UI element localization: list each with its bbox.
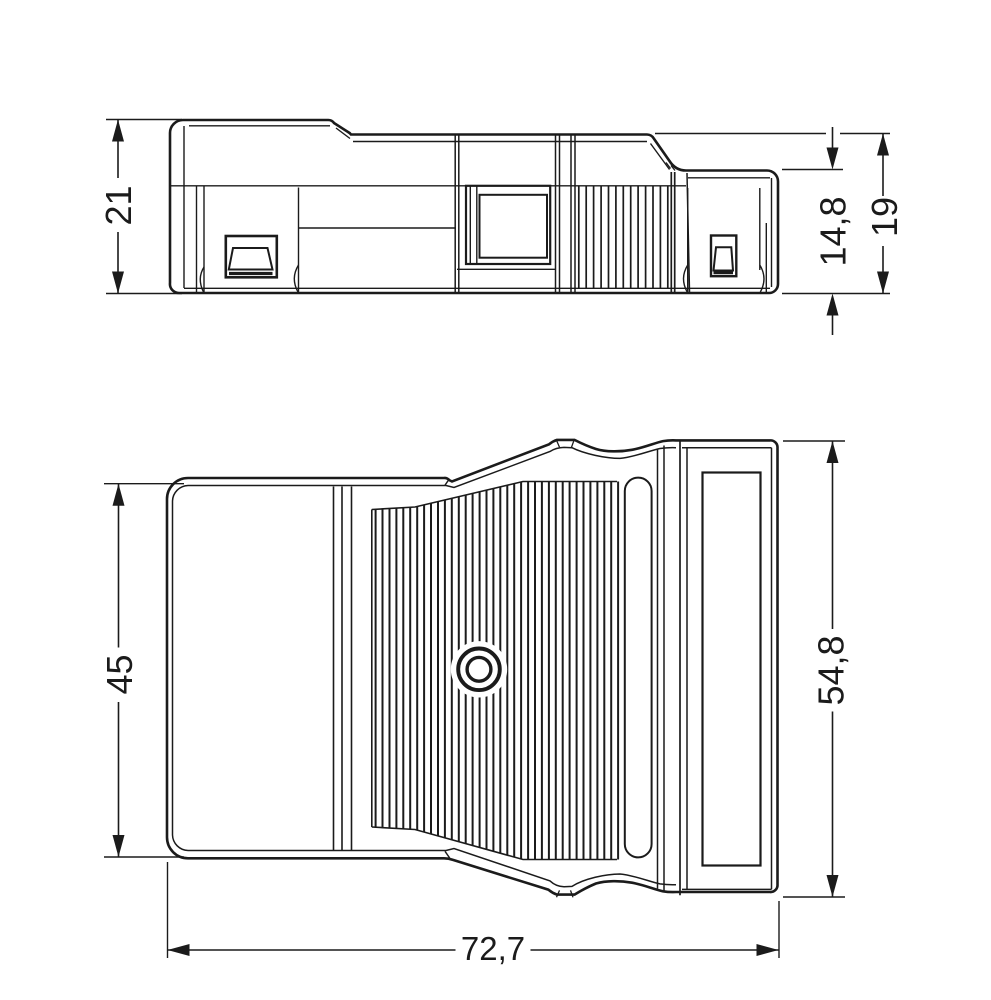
svg-text:19: 19 [864, 197, 905, 237]
svg-text:14,8: 14,8 [813, 196, 854, 266]
svg-text:21: 21 [98, 185, 139, 225]
svg-text:72,7: 72,7 [461, 930, 525, 967]
svg-text:54,8: 54,8 [811, 635, 852, 705]
svg-text:45: 45 [99, 654, 140, 694]
